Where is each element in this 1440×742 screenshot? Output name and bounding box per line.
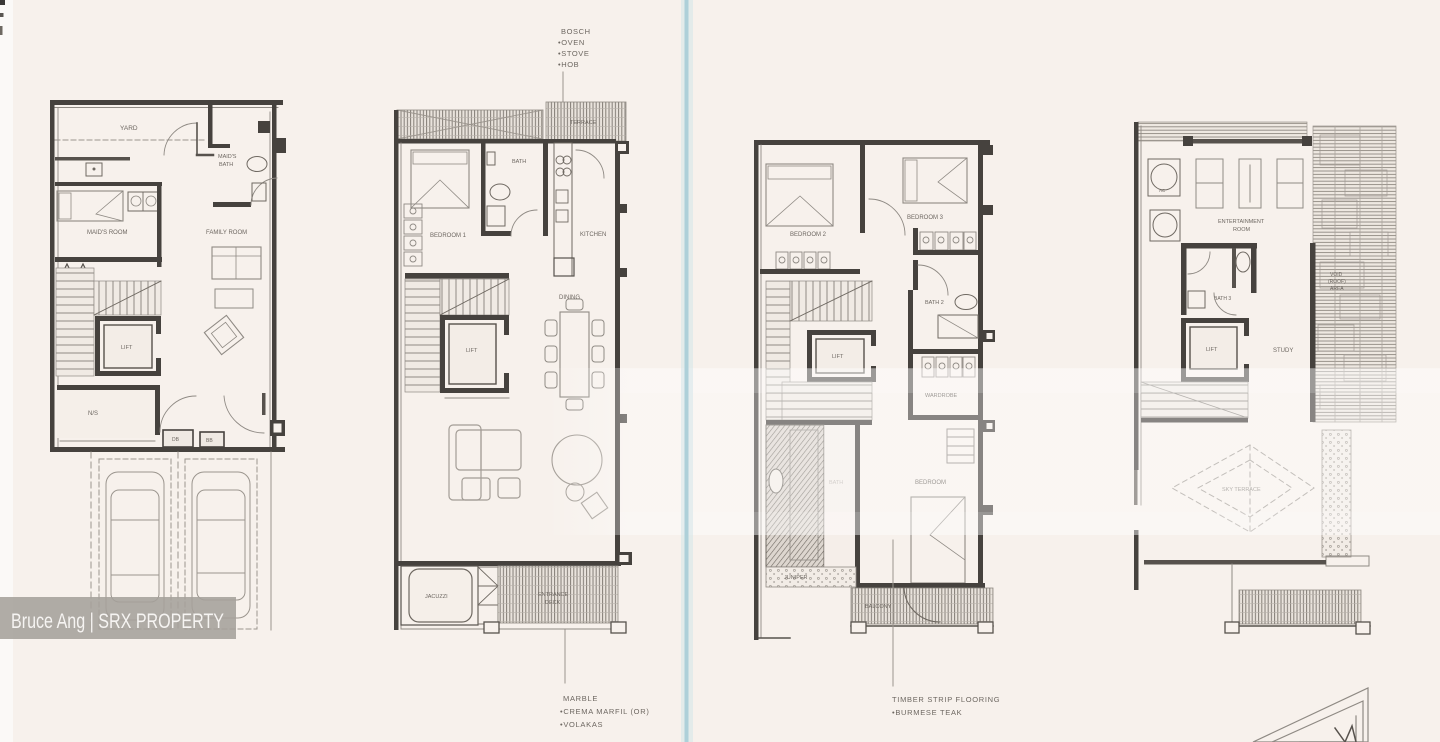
svg-text:TIMBER STRIP FLOORING: TIMBER STRIP FLOORING <box>892 695 1000 704</box>
svg-text:LIFT: LIFT <box>121 345 133 351</box>
svg-text:(ROOF): (ROOF) <box>1328 279 1346 285</box>
svg-text:BALCONY: BALCONY <box>865 604 892 610</box>
svg-text:LIFT: LIFT <box>832 354 844 360</box>
svg-text:•BURMESE TEAK: •BURMESE TEAK <box>892 708 962 717</box>
svg-text:TERRACE: TERRACE <box>570 120 597 126</box>
svg-text:JACUZZI: JACUZZI <box>425 594 448 600</box>
svg-text:N/S: N/S <box>88 411 98 417</box>
svg-text:MARBLE: MARBLE <box>563 694 598 703</box>
svg-text:BATH: BATH <box>512 159 526 165</box>
svg-text:•CREMA MARFIL (OR): •CREMA MARFIL (OR) <box>560 707 650 716</box>
svg-text:Bruce Ang | SRX PROPERTY: Bruce Ang | SRX PROPERTY <box>11 610 224 633</box>
svg-text:•VOLAKAS: •VOLAKAS <box>560 720 603 729</box>
svg-text:DINING: DINING <box>559 295 580 301</box>
svg-text:BB: BB <box>206 438 213 444</box>
svg-text:BEDROOM 2: BEDROOM 2 <box>790 232 827 238</box>
svg-text:AC: AC <box>1159 188 1166 193</box>
svg-text:MAID'S: MAID'S <box>218 154 237 160</box>
svg-text:MAID'S ROOM: MAID'S ROOM <box>87 230 127 236</box>
svg-text:AREA: AREA <box>1330 286 1344 292</box>
svg-text:•STOVE: •STOVE <box>558 49 590 58</box>
svg-text:LIFT: LIFT <box>466 348 478 354</box>
svg-text:STUDY: STUDY <box>1273 348 1293 354</box>
svg-text:FAMILY ROOM: FAMILY ROOM <box>206 230 247 236</box>
svg-text:ENTRANCE: ENTRANCE <box>538 592 569 598</box>
svg-text:ROOM: ROOM <box>1233 227 1251 233</box>
svg-text:DECK: DECK <box>545 600 561 606</box>
svg-text:ENTERTAINMENT: ENTERTAINMENT <box>1218 219 1265 225</box>
svg-text:VOID: VOID <box>1330 272 1343 278</box>
svg-text:LIFT: LIFT <box>1206 347 1218 353</box>
svg-text:YARD: YARD <box>120 125 138 132</box>
svg-text:KITCHEN: KITCHEN <box>580 232 606 238</box>
svg-text:BEDROOM 1: BEDROOM 1 <box>430 233 467 239</box>
svg-text:BEDROOM 3: BEDROOM 3 <box>907 215 944 221</box>
svg-text:BOSCH: BOSCH <box>561 27 591 36</box>
svg-text:DB: DB <box>172 437 180 443</box>
svg-text:BATH: BATH <box>219 162 233 168</box>
svg-text:BATH 2: BATH 2 <box>925 300 944 306</box>
svg-text:JUNIPER: JUNIPER <box>784 575 808 581</box>
svg-text:BATH 3: BATH 3 <box>1214 296 1231 302</box>
svg-text:•OVEN: •OVEN <box>558 38 585 47</box>
svg-text:•HOB: •HOB <box>558 60 579 69</box>
